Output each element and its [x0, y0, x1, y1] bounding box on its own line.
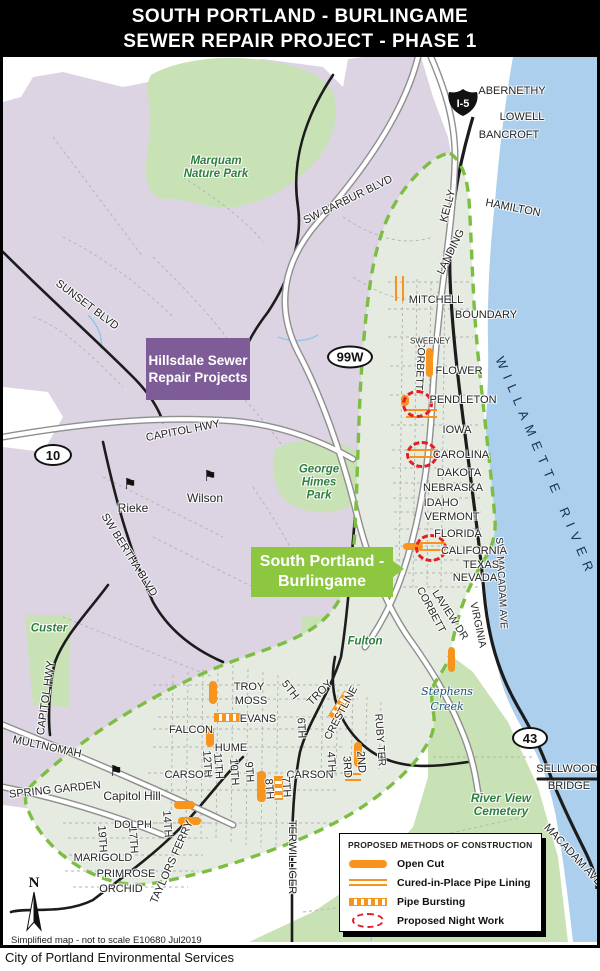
street-label-19th: 19TH: [95, 825, 109, 853]
legend-title: PROPOSED METHODS OF CONSTRUCTION: [348, 840, 533, 850]
highway-43-shield: 43: [512, 727, 548, 749]
street-label-9th: 9TH: [242, 761, 255, 783]
cured-in-place-sample-icon: [348, 879, 388, 886]
street-label-dakota: DAKOTA: [437, 467, 481, 479]
street-label-evans: EVANS: [240, 713, 276, 725]
highway-99w-shield: 99W: [327, 346, 373, 369]
street-label-texas: TEXAS: [463, 559, 499, 571]
road-label-sellwood: SELLWOOD: [536, 763, 598, 775]
street-label-nevada: NEVADA: [453, 572, 497, 584]
legend-label-open-cut: Open Cut: [397, 858, 444, 870]
street-label-bancroft: BANCROFT: [479, 129, 540, 141]
street-label-boundary: BOUNDARY: [455, 309, 517, 321]
school-flag-icon: ⚑: [123, 475, 136, 493]
street-label-abernethy: ABERNETHY: [478, 85, 545, 97]
street-label-6th: 6TH: [295, 717, 308, 738]
night-work-circle: [402, 390, 433, 418]
burlingame-box-arrow: [389, 558, 404, 580]
open-cut-marker: [448, 647, 455, 672]
street-label-marigold: MARIGOLD: [74, 852, 133, 864]
stephens-creek-label: Stephens Creek: [417, 684, 477, 714]
street-label-nebraska: NEBRASKA: [423, 482, 483, 494]
school-flag-icon: ⚑: [203, 467, 216, 485]
map-note: Simplified map - not to scale E10680 Jul…: [11, 935, 202, 946]
cured-in-place-marker: [395, 276, 404, 301]
marquam-park-label: Marquam Nature Park: [183, 155, 249, 181]
street-label-2nd: 2ND: [354, 751, 368, 774]
street-label-florida: FLORIDA: [434, 528, 482, 540]
interstate-5-shield: I-5: [446, 88, 480, 117]
legend-label-cured: Cured-in-Place Pipe Lining: [397, 877, 531, 889]
street-label-iowa: IOWA: [443, 424, 472, 436]
street-label-falcon: FALCON: [169, 724, 213, 736]
title-line2: SEWER REPAIR PROJECT - PHASE 1: [0, 29, 600, 54]
street-label-3rd: 3RD: [340, 756, 354, 779]
street-label-orchid: ORCHID: [99, 883, 142, 895]
legend-label-bursting: Pipe Bursting: [397, 896, 465, 908]
north-label: N: [21, 875, 47, 892]
map-sheet: SOUTH PORTLAND - BURLINGAME SEWER REPAIR…: [0, 0, 600, 971]
street-label-8th: 8TH: [262, 778, 275, 800]
open-cut-sample-icon: [348, 860, 388, 868]
street-label-sweeney: SWEENEY: [410, 337, 450, 346]
street-label-primrose: PRIMROSE: [97, 868, 156, 880]
street-label-troy-1: TROY: [234, 681, 265, 693]
pipe-bursting-marker: [214, 713, 241, 722]
hillsdale-project-box: Hillsdale Sewer Repair Projects: [146, 338, 250, 400]
open-cut-marker: [174, 801, 195, 809]
street-label-carolina: CAROLINA: [433, 449, 489, 461]
map-title: SOUTH PORTLAND - BURLINGAME SEWER REPAIR…: [0, 0, 600, 57]
title-line1: SOUTH PORTLAND - BURLINGAME: [0, 4, 600, 29]
interstate-5-label: I-5: [457, 98, 470, 110]
capitol-hill-label: Capitol Hill: [103, 789, 160, 803]
credit-line: City of Portland Environmental Services: [5, 950, 234, 965]
street-label-lowell: LOWELL: [500, 111, 545, 123]
legend-row-cured: Cured-in-Place Pipe Lining: [348, 873, 533, 892]
street-label-mitchell: MITCHELL: [409, 294, 463, 306]
map-canvas: I-5 99W 10 43 Hillsdale Sewer Repair Pro…: [0, 57, 600, 948]
street-label-10th: 10TH: [227, 758, 241, 786]
street-label-pendleton: PENDLETON: [429, 394, 496, 406]
legend-label-night-work: Proposed Night Work: [397, 915, 504, 927]
street-label-4th: 4TH: [324, 751, 337, 773]
open-cut-marker: [209, 681, 217, 704]
legend-row-open-cut: Open Cut: [348, 854, 533, 873]
george-himes-park-label: George Himes Park: [290, 464, 348, 503]
pipe-bursting-sample-icon: [348, 898, 388, 906]
night-work-sample-icon: [348, 913, 388, 928]
legend: PROPOSED METHODS OF CONSTRUCTION Open Cu…: [339, 833, 542, 932]
north-arrow: N: [21, 875, 47, 937]
street-label-dolph: DOLPH: [114, 819, 152, 831]
wilson-label: Wilson: [187, 491, 223, 505]
street-label-12th: 12TH: [200, 750, 214, 778]
custer-label: Custer: [31, 623, 67, 636]
street-label-moss: MOSS: [235, 695, 267, 707]
fulton-label: Fulton: [347, 636, 382, 649]
highway-10-shield: 10: [34, 444, 72, 466]
legend-row-bursting: Pipe Bursting: [348, 892, 533, 911]
open-cut-marker: [426, 348, 433, 377]
school-flag-icon: ⚑: [109, 762, 122, 780]
street-label-idaho: IDAHO: [424, 497, 459, 509]
street-label-flower: FLOWER: [435, 365, 482, 377]
river-view-cemetery-label: River View Cemetery: [465, 792, 537, 818]
street-label-california: CALIFORNIA: [441, 545, 507, 557]
legend-row-night-work: Proposed Night Work: [348, 911, 533, 930]
rieke-label: Rieke: [118, 501, 149, 515]
street-label-14th: 14TH: [160, 810, 174, 838]
north-arrow-icon: [26, 892, 42, 932]
road-label-bridge: BRIDGE: [548, 780, 590, 792]
road-label-terwilliger: TERWILLIGER: [286, 820, 298, 894]
street-label-7th: 7TH: [279, 776, 292, 798]
burlingame-project-box: South Portland - Burlingame: [251, 547, 393, 597]
street-label-vermont: VERMONT: [425, 511, 480, 523]
